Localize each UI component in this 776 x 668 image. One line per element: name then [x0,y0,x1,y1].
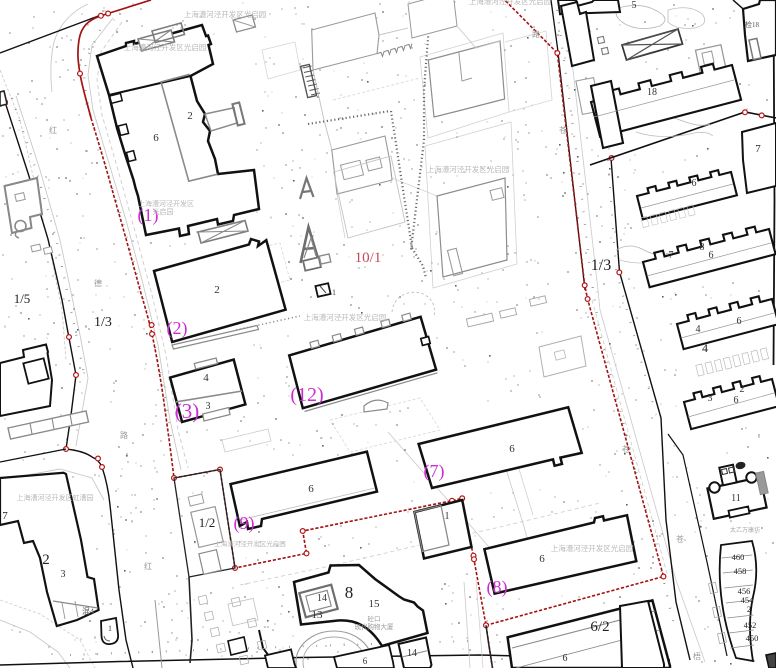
svg-text:1/5: 1/5 [14,291,31,306]
svg-text:8: 8 [345,583,354,602]
svg-text:460: 460 [732,552,745,562]
svg-text:6: 6 [509,443,515,455]
svg-text:1: 1 [445,511,450,522]
svg-text:7: 7 [755,143,761,155]
svg-text:5: 5 [632,0,637,11]
svg-text:452: 452 [744,620,757,630]
svg-text:上海漕河泾开发区光启园: 上海漕河泾开发区光启园 [214,539,286,548]
svg-text:3: 3 [708,393,713,404]
svg-text:14: 14 [317,593,327,604]
svg-text:7: 7 [669,250,674,261]
svg-text:苍: 苍 [622,444,630,454]
svg-text:13: 13 [312,609,324,621]
svg-text:2: 2 [747,604,751,614]
svg-text:路: 路 [532,29,540,39]
svg-text:路: 路 [120,430,128,440]
svg-text:6: 6 [308,483,314,495]
svg-text:15: 15 [369,598,381,610]
svg-text:1: 1 [108,624,112,633]
svg-text:6: 6 [153,132,159,144]
svg-text:(7): (7) [424,461,445,482]
svg-text:18: 18 [647,87,657,98]
svg-text:上海漕河泾开发区光启园: 上海漕河泾开发区光启园 [427,164,510,174]
svg-text:光启园: 光启园 [153,207,174,216]
svg-text:6: 6 [737,316,742,327]
svg-text:(3): (3) [175,399,200,423]
svg-text:德: 德 [94,278,102,288]
svg-text:上海漕河泾开发区光启园: 上海漕河泾开发区光启园 [304,312,387,322]
svg-text:梧: 梧 [693,651,701,661]
svg-text:(2): (2) [167,318,188,339]
svg-text:8: 8 [700,242,705,253]
svg-text:4: 4 [696,324,701,335]
svg-text:上海漕河泾开发区光启园: 上海漕河泾开发区光启园 [469,0,552,6]
svg-text:红: 红 [49,125,57,135]
svg-text:上海漕河泾开发区光启园: 上海漕河泾开发区光启园 [184,9,267,19]
svg-text:砼口: 砼口 [368,614,381,623]
svg-text:上海漕河泾开发区: 上海漕河泾开发区 [138,199,194,208]
svg-text:上海漕河泾开发区虹漕园: 上海漕河泾开发区虹漕园 [17,493,94,502]
svg-text:6: 6 [563,653,568,664]
svg-text:上海漕河泾开发区光启园: 上海漕河泾开发区光启园 [551,543,634,553]
svg-text:4: 4 [203,372,209,384]
svg-text:1: 1 [332,288,336,297]
svg-text:检18: 检18 [745,20,760,29]
svg-text:6: 6 [692,178,697,189]
svg-text:7: 7 [2,510,8,522]
svg-text:2: 2 [214,284,220,296]
svg-text:苍: 苍 [676,534,684,544]
svg-text:上海漕河泾开发区光启园: 上海漕河泾开发区光启园 [124,42,207,52]
svg-text:混4: 混4 [82,607,94,616]
svg-text:2: 2 [42,552,50,568]
svg-text:1/2: 1/2 [199,515,216,530]
svg-text:6: 6 [363,656,368,666]
svg-text:(12): (12) [290,384,323,406]
svg-text:4: 4 [702,341,708,355]
svg-text:6/2: 6/2 [590,619,609,635]
svg-text:2: 2 [740,384,745,395]
svg-text:1/3: 1/3 [591,257,611,274]
svg-text:6: 6 [734,395,739,406]
svg-text:(9): (9) [234,513,255,534]
svg-text:450: 450 [746,633,759,643]
svg-text:红: 红 [144,561,152,571]
svg-text:6: 6 [539,553,545,565]
svg-text:3: 3 [61,569,66,580]
svg-text:1/3: 1/3 [94,315,112,330]
svg-text:458: 458 [734,566,747,576]
svg-text:14: 14 [407,648,417,659]
svg-text:现代购物大厦: 现代购物大厦 [355,622,395,631]
svg-text:(8): (8) [487,577,508,598]
svg-text:3: 3 [206,401,211,412]
svg-text:太乙万康坊: 太乙万康坊 [730,526,760,534]
svg-text:6: 6 [709,250,714,261]
svg-text:10/1: 10/1 [355,250,382,266]
svg-text:2: 2 [187,110,193,122]
svg-text:苍: 苍 [559,125,567,135]
svg-text:11: 11 [731,493,741,504]
